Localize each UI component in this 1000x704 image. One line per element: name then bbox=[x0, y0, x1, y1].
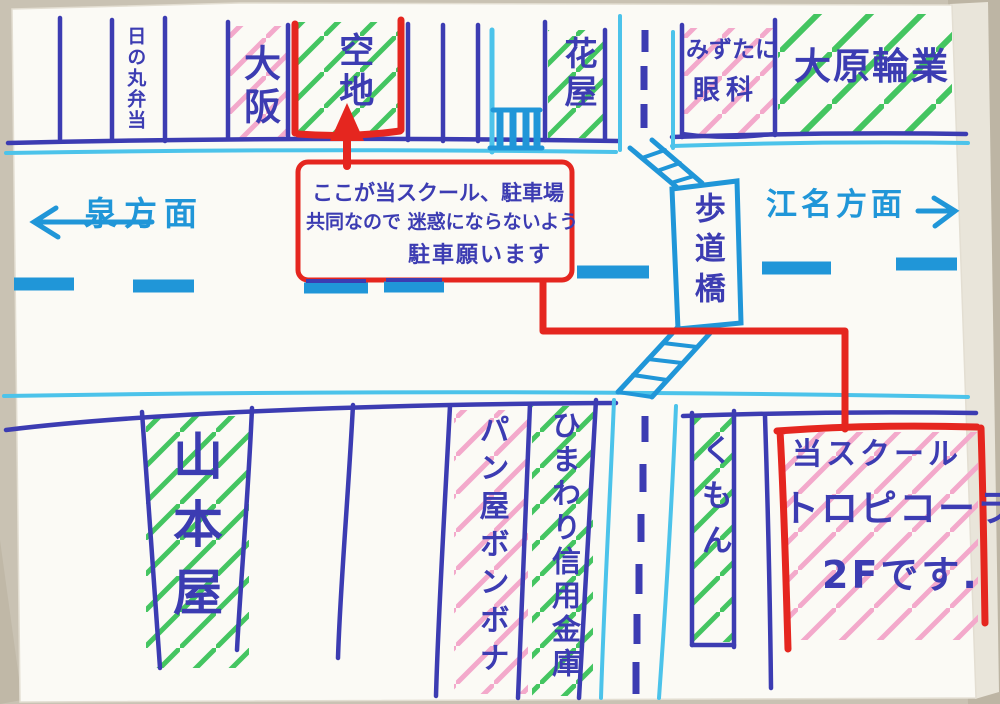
building-label-osaka: 大阪 bbox=[238, 44, 279, 130]
direction-label-east: 江名方面 bbox=[766, 188, 906, 223]
school-label-line1: 当スクール bbox=[792, 438, 962, 472]
building-label-himawari-bank: ひまわり信用金庫 bbox=[548, 410, 580, 682]
parking-note-line2: 共同なので 迷惑にならないよう bbox=[306, 212, 578, 233]
building-label-yamamotoya: 山本屋 bbox=[166, 430, 222, 634]
building-label-hinomaru-bento: 日の丸弁当 bbox=[124, 26, 145, 131]
building-label-ohara-cycles: 大原輪業 bbox=[794, 46, 950, 87]
school-label-line3: 2Fです. bbox=[822, 554, 980, 597]
building-label-kumon: くもん bbox=[696, 434, 731, 569]
bridge-label: 歩道橋 bbox=[689, 192, 724, 312]
hand-drawn-map: 日の丸弁当 大阪 空地 花屋 みずたに 眼科 大原輪業 泉方面 江名方面 歩道橋… bbox=[0, 0, 1000, 704]
parking-note-line1: ここが当スクール、駐車場 bbox=[312, 182, 564, 206]
building-label-vacant-lot: 空地 bbox=[333, 32, 372, 112]
building-label-bakery-bonbona: パン屋ボンボナ bbox=[474, 414, 508, 680]
building-label-flower-shop: 花屋 bbox=[559, 36, 596, 112]
building-label-mizutani-line2: 眼科 bbox=[686, 76, 766, 106]
parking-note-line3: 駐車願います bbox=[408, 244, 552, 269]
direction-label-west: 泉方面 bbox=[84, 196, 204, 233]
school-label-line2: トロピコーラ bbox=[782, 488, 1000, 529]
building-label-mizutani-line1: みずたに bbox=[686, 38, 774, 64]
